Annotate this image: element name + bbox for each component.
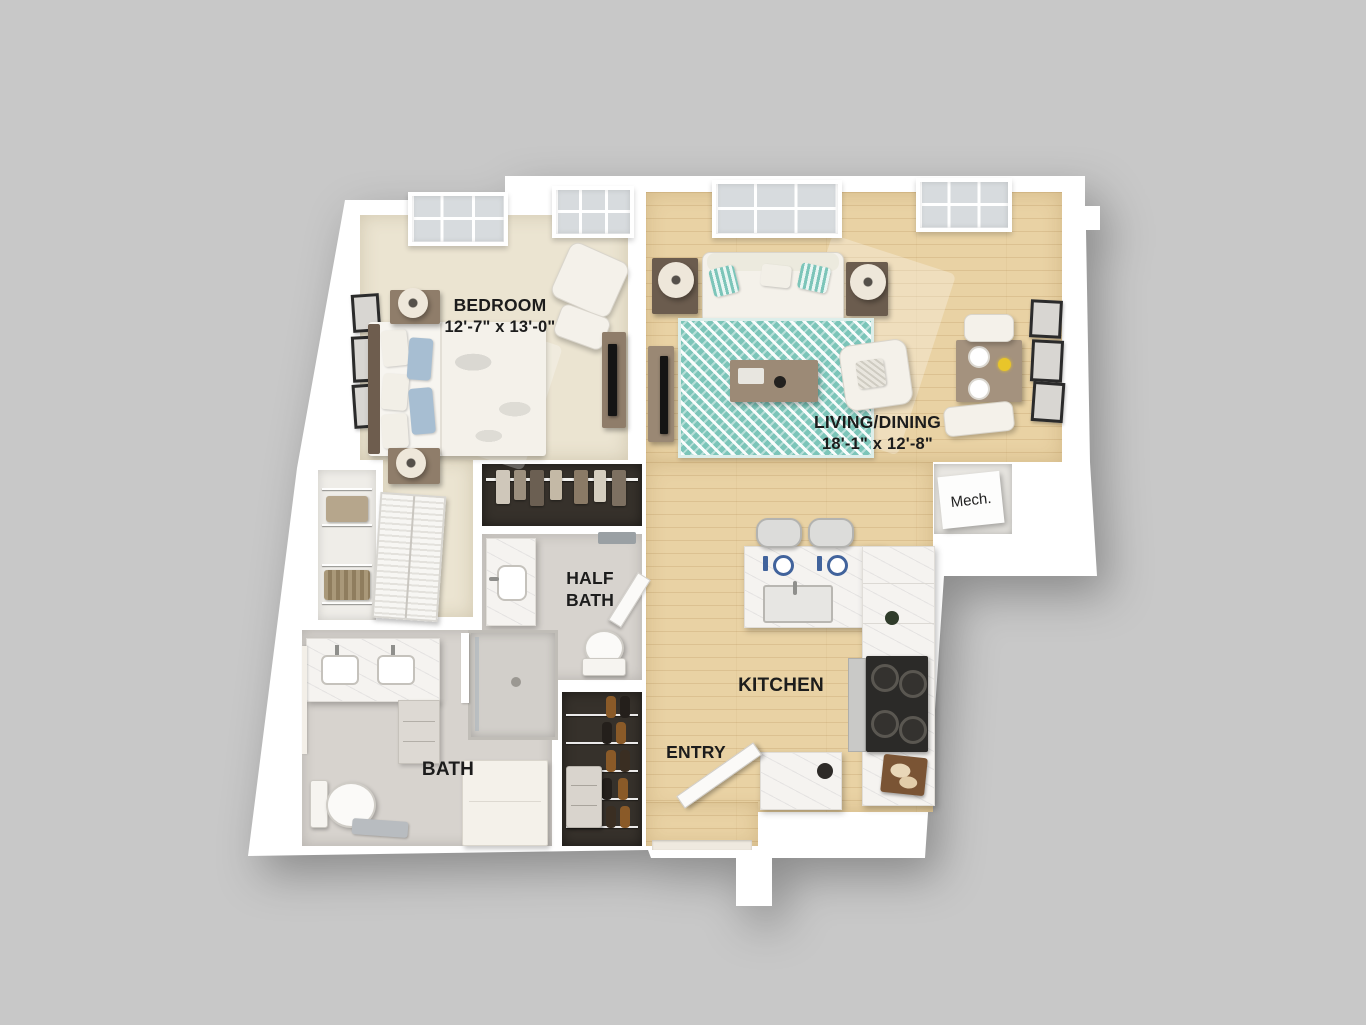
dining-table bbox=[956, 340, 1022, 402]
bed-pillow bbox=[380, 329, 410, 368]
bedroom-name: BEDROOM bbox=[415, 295, 585, 317]
table-lamp bbox=[396, 448, 426, 478]
entry-name: ENTRY bbox=[666, 742, 726, 762]
place-setting bbox=[763, 556, 768, 571]
place-setting bbox=[817, 556, 822, 571]
vanity-sink bbox=[497, 565, 527, 601]
entry-closet bbox=[562, 692, 642, 846]
bar-stool bbox=[808, 518, 854, 548]
cabinet-seam bbox=[863, 583, 934, 584]
oven-front bbox=[848, 658, 866, 752]
dining-chair bbox=[964, 314, 1014, 342]
coffee-table bbox=[730, 360, 818, 402]
living-dining-label: LIVING/DINING 18'-1" x 12'-8" bbox=[785, 412, 970, 455]
towel-rack bbox=[598, 532, 636, 544]
closet-double-doors bbox=[372, 492, 447, 622]
bread bbox=[899, 776, 918, 790]
entry-threshold bbox=[652, 840, 752, 850]
bed-pillow bbox=[380, 373, 409, 411]
bath-name: BATH bbox=[422, 759, 474, 780]
living-window-2 bbox=[916, 178, 1012, 232]
bedroom-tv bbox=[608, 344, 617, 416]
serving-tray bbox=[738, 368, 764, 384]
shower-wall bbox=[461, 633, 469, 703]
vanity-sink bbox=[377, 655, 415, 685]
bed-headboard bbox=[368, 324, 380, 454]
picture-frame bbox=[1030, 339, 1064, 383]
cutting-board bbox=[880, 754, 928, 796]
entry-label: ENTRY bbox=[656, 742, 736, 764]
storage-basket bbox=[326, 496, 368, 522]
half-bath-label: HALF BATH bbox=[548, 568, 632, 612]
mech-label: Mech. bbox=[950, 489, 992, 510]
kitchen-name: KITCHEN bbox=[738, 675, 824, 696]
half-bath-vanity bbox=[486, 538, 536, 626]
table-lamp bbox=[850, 264, 886, 300]
picture-frame bbox=[1031, 381, 1066, 423]
bed-pillow bbox=[381, 413, 409, 449]
half-bath-name: HALF BATH bbox=[548, 568, 632, 612]
bedroom-window-1 bbox=[408, 192, 508, 246]
place-setting bbox=[827, 555, 848, 576]
flower-arrangement bbox=[817, 763, 833, 779]
linen-closet bbox=[318, 470, 376, 620]
closet-dresser bbox=[566, 766, 602, 828]
living-dining-dims: 18'-1" x 12'-8" bbox=[785, 434, 970, 455]
stove-cooktop bbox=[866, 656, 928, 752]
living-dining-name: LIVING/DINING bbox=[785, 412, 970, 434]
place-setting bbox=[773, 555, 794, 576]
faucet bbox=[489, 577, 499, 581]
kitchen-counter-bottom bbox=[760, 752, 842, 810]
kitchen-label: KITCHEN bbox=[726, 674, 836, 698]
bedroom-dims: 12'-7" x 13'-0" bbox=[415, 317, 585, 338]
flower-vase bbox=[998, 358, 1011, 371]
faucet bbox=[391, 645, 395, 655]
shower-drain bbox=[511, 677, 521, 687]
floorplan-canvas: Mech. bbox=[0, 0, 1366, 1025]
decor-vase bbox=[774, 376, 786, 388]
picture-frame bbox=[1029, 299, 1063, 339]
vanity-drawers bbox=[398, 700, 440, 764]
bath-mirror bbox=[302, 646, 307, 754]
bedroom-window-2 bbox=[552, 186, 634, 238]
faucet bbox=[335, 645, 339, 655]
faucet bbox=[793, 581, 797, 595]
mech-panel: Mech. bbox=[937, 471, 1004, 529]
bedroom-closet bbox=[482, 464, 642, 526]
half-bath-toilet-tank bbox=[582, 658, 626, 676]
bed-pillow bbox=[408, 387, 436, 435]
bed-duvet bbox=[440, 322, 546, 456]
table-lamp bbox=[658, 262, 694, 298]
cabinet-seam bbox=[863, 623, 934, 624]
storage-basket bbox=[324, 570, 370, 600]
living-armchair bbox=[838, 338, 915, 413]
bedroom-label: BEDROOM 12'-7" x 13'-0" bbox=[415, 295, 585, 338]
bath-vanity bbox=[306, 638, 440, 702]
bar-stool bbox=[756, 518, 802, 548]
accent-pillow bbox=[855, 358, 887, 390]
sofa-pillow bbox=[797, 262, 832, 294]
shower bbox=[468, 630, 558, 740]
living-window-1 bbox=[712, 180, 842, 238]
plant-pot bbox=[885, 611, 899, 625]
bath-label: BATH bbox=[406, 758, 490, 782]
vanity-sink bbox=[321, 655, 359, 685]
island-sink bbox=[763, 585, 833, 623]
bed-pillow bbox=[407, 337, 434, 381]
bed bbox=[368, 322, 544, 456]
living-tv bbox=[660, 356, 668, 434]
shower-glass bbox=[475, 637, 479, 731]
sofa-pillow bbox=[760, 263, 792, 288]
dinner-plate bbox=[968, 378, 990, 400]
dinner-plate bbox=[968, 346, 990, 368]
